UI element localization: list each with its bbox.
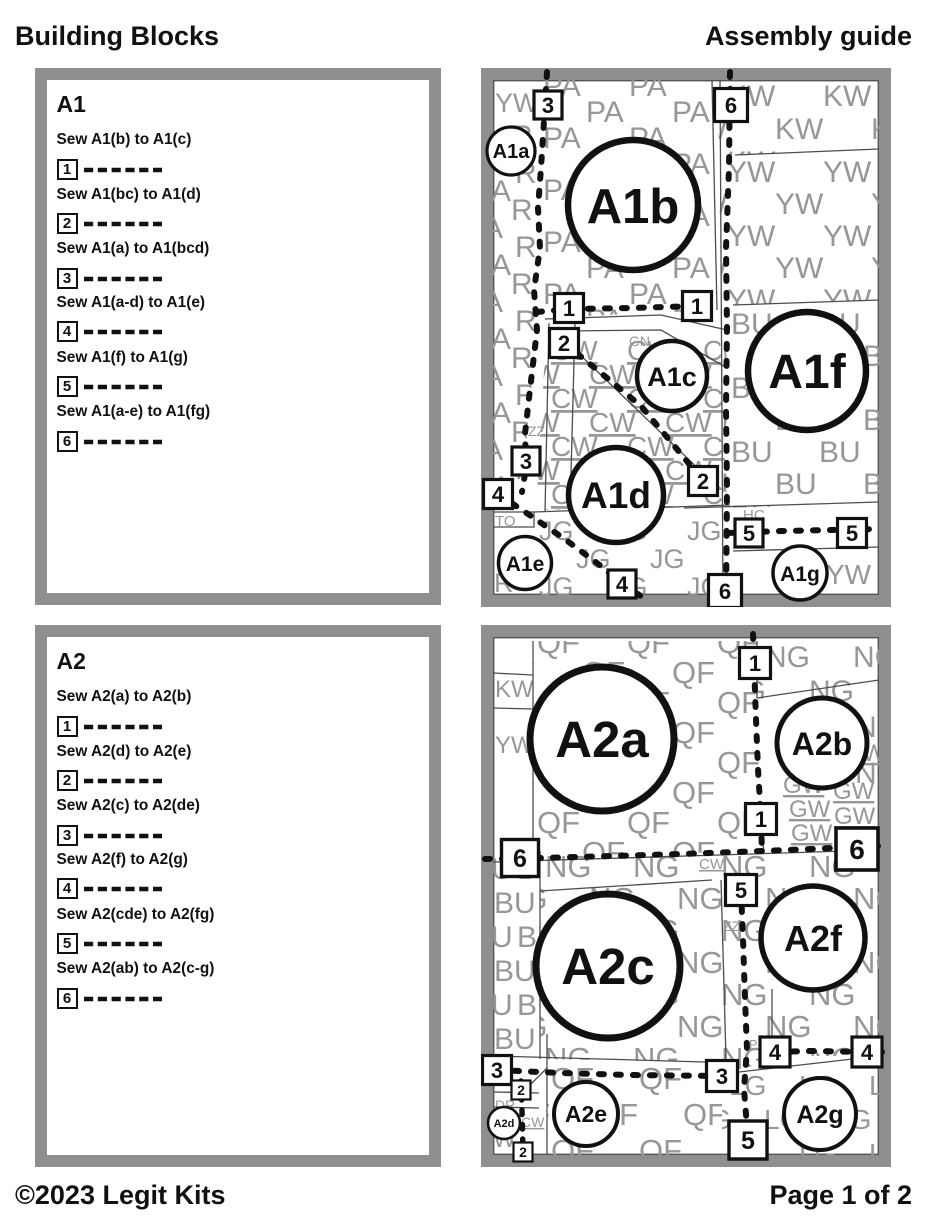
svg-text:QF: QF [672,715,715,750]
svg-text:YW: YW [775,252,824,285]
svg-text:NG: NG [677,945,724,980]
svg-text:NG: NG [677,881,724,916]
svg-text:3: 3 [520,449,532,474]
svg-text:A1a: A1a [493,141,531,163]
svg-text:2: 2 [697,469,709,494]
svg-text:GW: GW [791,820,833,847]
svg-text:3: 3 [542,93,554,118]
svg-text:R: R [511,268,533,301]
svg-text:NG: NG [545,849,592,884]
svg-text:ZZ: ZZ [723,918,741,934]
svg-text:A2g: A2g [796,1101,843,1129]
svg-text:1: 1 [749,651,761,676]
svg-text:A: A [491,249,511,282]
svg-text:A2b: A2b [792,726,852,762]
svg-text:4: 4 [616,572,629,597]
svg-text:KW: KW [775,113,824,146]
svg-text:BU: BU [819,436,861,469]
svg-text:KW: KW [495,676,534,703]
svg-text:A1g: A1g [780,563,820,586]
svg-text:3: 3 [491,1058,503,1083]
svg-text:R: R [511,342,533,375]
svg-text:R: R [511,194,533,227]
svg-text:R: R [515,231,537,264]
svg-text:4: 4 [769,1040,782,1065]
svg-text:BU: BU [494,955,536,988]
svg-text:ZZ: ZZ [528,423,546,439]
svg-text:PA: PA [672,96,710,129]
svg-text:4: 4 [492,482,505,507]
svg-text:PA: PA [543,122,581,155]
svg-text:5: 5 [743,521,755,546]
svg-text:A2f: A2f [784,918,843,959]
svg-text:QF: QF [672,655,715,690]
svg-text:GN: GN [629,333,650,349]
svg-text:A2d: A2d [494,1118,515,1130]
svg-text:PA: PA [672,252,710,285]
svg-text:KW: KW [823,80,872,113]
svg-text:6: 6 [513,845,527,873]
svg-text:JG: JG [576,544,611,574]
svg-text:A: A [491,397,511,430]
svg-text:YW: YW [823,156,872,189]
svg-text:YW: YW [826,559,872,590]
svg-text:BU: BU [494,887,536,920]
svg-text:GW: GW [789,796,831,823]
svg-text:6: 6 [725,93,737,118]
svg-text:A: A [491,323,511,356]
svg-text:YW: YW [775,188,824,221]
svg-text:NG: NG [677,1009,724,1044]
svg-text:1: 1 [755,807,767,832]
svg-text:QF: QF [627,805,670,840]
svg-text:BU: BU [731,436,773,469]
svg-text:2: 2 [519,1144,527,1160]
svg-text:A2c: A2c [561,938,655,995]
svg-text:YW: YW [727,156,776,189]
svg-text:3: 3 [716,1064,728,1089]
svg-text:YW: YW [727,220,776,253]
svg-text:A2e: A2e [565,1101,607,1127]
svg-text:6: 6 [849,834,865,865]
svg-text:YW: YW [823,220,872,253]
svg-text:6: 6 [719,579,731,604]
svg-text:QF: QF [672,775,715,810]
svg-text:A1e: A1e [506,553,545,576]
svg-text:5: 5 [735,878,747,903]
svg-text:5: 5 [846,521,858,546]
svg-text:4: 4 [861,1040,874,1065]
svg-text:A1b: A1b [587,180,680,234]
svg-text:JG: JG [650,544,685,574]
svg-text:1: 1 [691,294,703,319]
svg-text:P: P [749,1037,758,1052]
svg-text:BU: BU [494,1023,536,1056]
svg-text:2: 2 [517,1082,525,1098]
svg-text:1: 1 [563,296,575,321]
svg-text:A1c: A1c [647,362,697,392]
svg-text:QF: QF [717,745,760,780]
svg-text:A: A [491,175,511,208]
svg-text:A1d: A1d [581,475,651,516]
svg-text:A2a: A2a [555,711,649,768]
svg-text:JG: JG [687,516,722,546]
svg-text:PA: PA [586,96,624,129]
svg-text:QF: QF [537,805,580,840]
svg-text:BU: BU [775,468,817,501]
svg-text:5: 5 [741,1127,755,1155]
svg-text:QF: QF [639,1061,682,1096]
svg-text:QF: QF [683,1097,726,1132]
svg-text:A1f: A1f [768,346,846,399]
svg-text:GW: GW [834,803,876,830]
svg-text:2: 2 [558,331,570,356]
